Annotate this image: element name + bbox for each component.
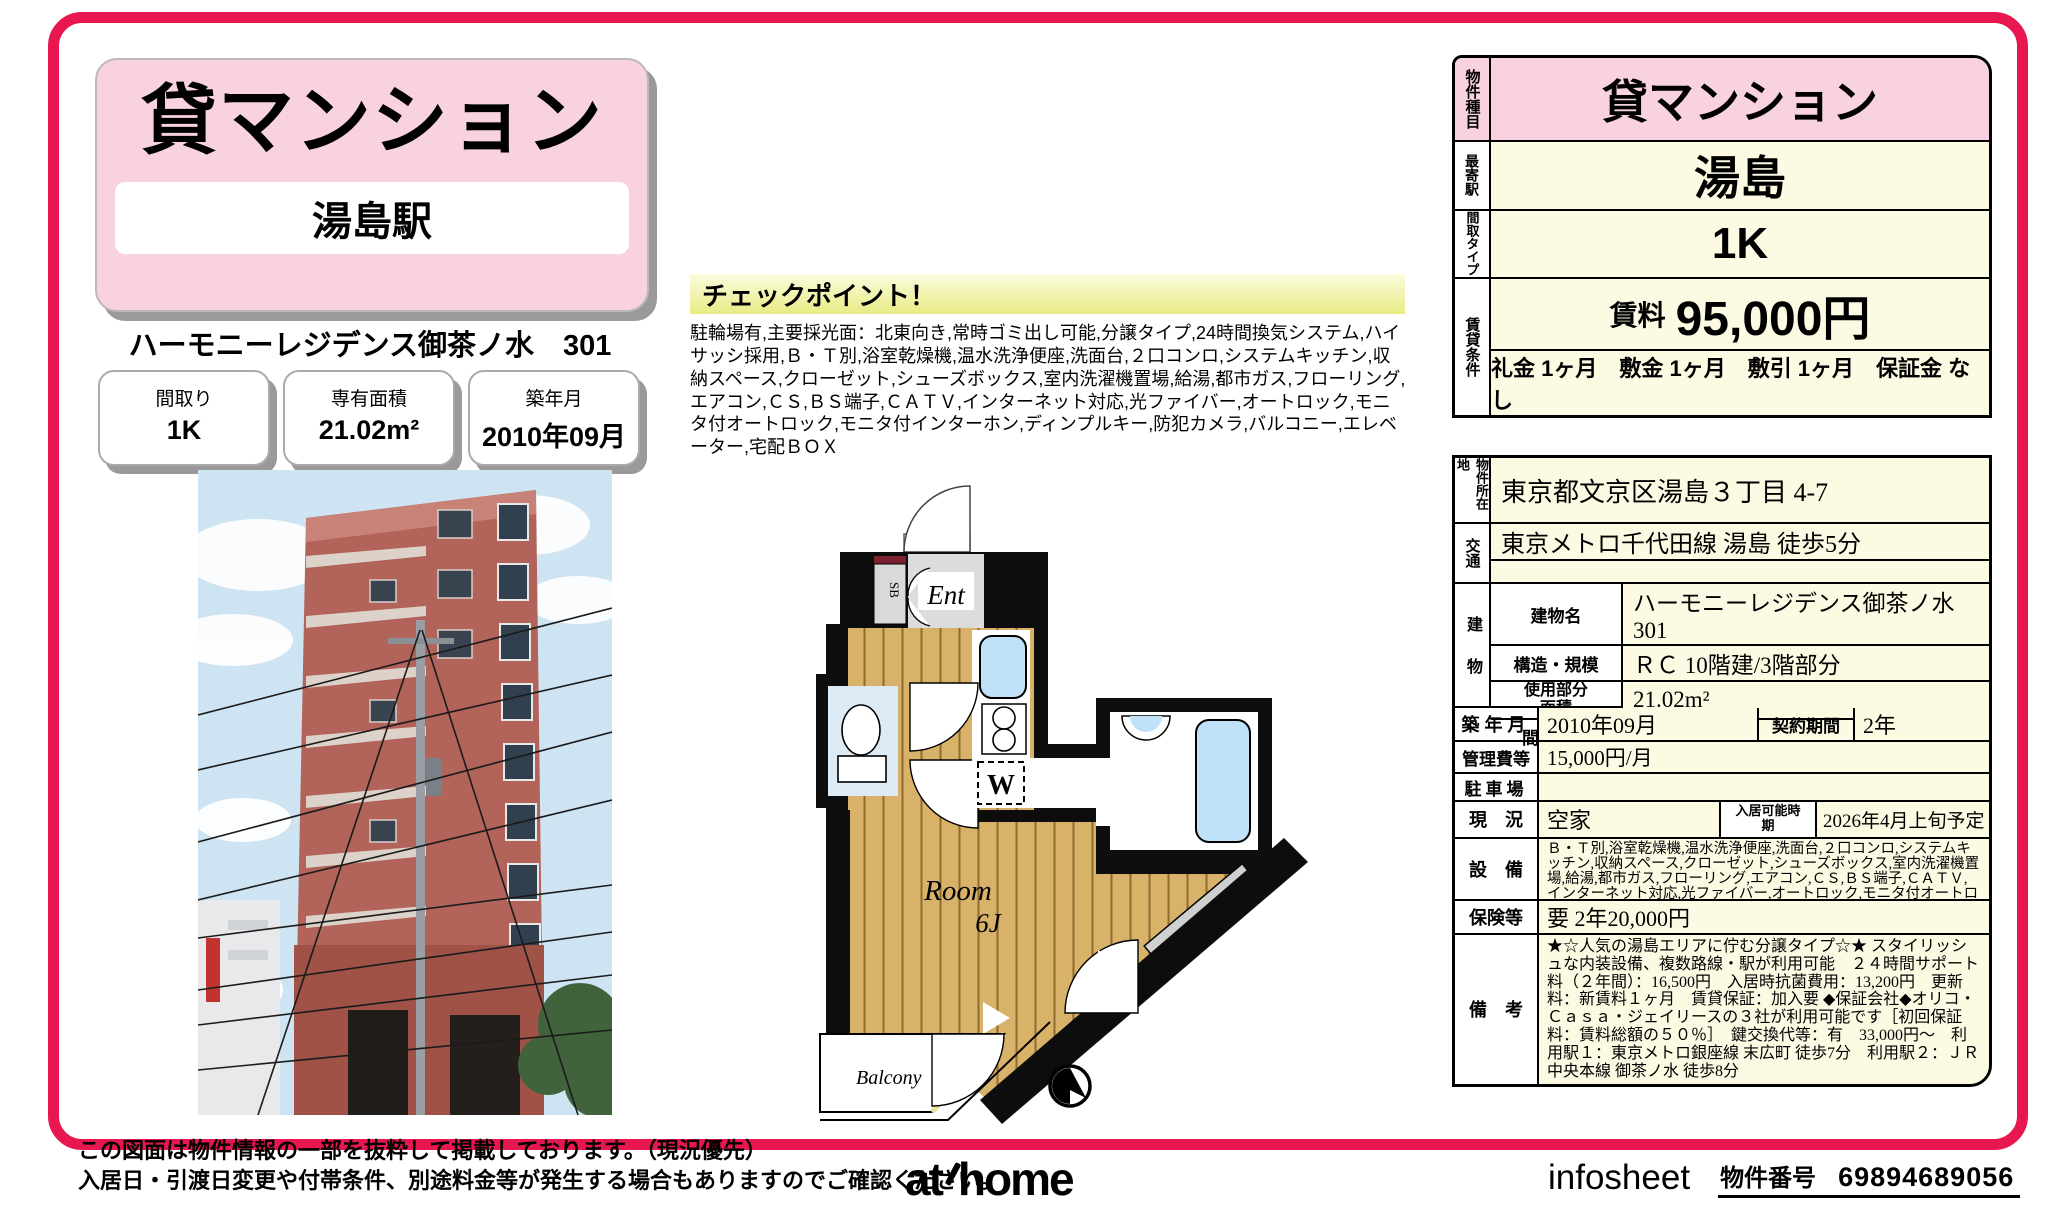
infosheet-label: infosheet — [1548, 1158, 1690, 1198]
contract-value: 2年 — [1855, 708, 1989, 740]
row-label: 設 備 — [1455, 839, 1539, 899]
row-label: 物件種目 — [1455, 58, 1491, 140]
property-type-value: 貸マンション — [1491, 58, 1989, 140]
compass-icon — [1050, 1066, 1090, 1106]
station-name: 湯島駅 — [312, 189, 432, 247]
property-category-title: 貸マンション — [141, 84, 603, 160]
building-subrow: 建物名 ハーモニーレジデンス御茶ノ水 301 — [1491, 584, 1989, 646]
property-number-value: 69894689056 — [1838, 1162, 2014, 1193]
row-label: 最寄駅 — [1455, 142, 1491, 208]
table-row-terms: 賃貸条件 賃料 95,000円 礼金 1ヶ月 敷金 1ヶ月 敷引 1ヶ月 保証金… — [1455, 279, 1989, 415]
spec-box-built: 築年月 2010年09月 — [468, 370, 640, 466]
toilet — [842, 705, 880, 755]
table-row-station: 最寄駅 湯島 — [1455, 142, 1989, 210]
table-row-insurance: 保険等 要 2年20,000円 — [1455, 901, 1989, 935]
footer-disclaimer: この図面は物件情報の一部を抜粋して掲載しております。（現況優先） 入居日・引渡日… — [78, 1136, 1038, 1195]
row-label: 駐車場 — [1455, 774, 1539, 800]
layout-type-value: 1K — [1491, 211, 1989, 277]
spec-label: 間取り — [155, 384, 212, 411]
spec-label: 築年月 — [525, 384, 582, 411]
entrance-label: Ent — [926, 580, 966, 610]
row-label: 現 況 — [1455, 802, 1539, 837]
row-label: 管理費等 — [1455, 742, 1539, 772]
infosheet-page: 貸マンション 湯島駅 ハーモニーレジデンス御茶ノ水 301 間取り 1K 専有面… — [0, 0, 2056, 1222]
athome-logo: at home — [905, 1152, 1073, 1206]
movein-value: 2026年4月上旬予定 — [1817, 802, 1989, 837]
parking-value — [1539, 774, 1989, 800]
detail-table: 物件所在地 東京都文京区湯島３丁目 4-7 交通 東京メトロ千代田線 湯島 徒歩… — [1452, 455, 1992, 1087]
spec-value: 21.02m² — [319, 415, 420, 446]
spec-value: 1K — [167, 415, 202, 446]
disclaimer-line2: 入居日・引渡日変更や付帯条件、別途料金等が発生する場合もありますのでご確認くださ… — [78, 1166, 1038, 1196]
entrance-door-arc — [904, 486, 970, 552]
sub-label: 構造・規模 — [1491, 646, 1623, 680]
sub-label: 建物名 — [1491, 584, 1623, 644]
row-label: 建物 — [1455, 584, 1491, 706]
spec-box-area: 専有面積 21.02m² — [283, 370, 455, 466]
checkpoint-header: チェックポイント！ — [690, 274, 1405, 314]
rent-value: 95,000円 — [1676, 279, 1871, 349]
building-name-line: ハーモニーレジデンス御茶ノ水 301 — [95, 322, 645, 364]
nearest-station-value: 湯島 — [1491, 142, 1989, 208]
access-value: 東京メトロ千代田線 湯島 徒歩5分 — [1491, 524, 1989, 561]
checkpoint-body: 駐輪場有,主要採光面：北東向き,常時ゴミ出し可能,分譲タイプ,24時間換気システ… — [690, 322, 1408, 459]
building-name-value: ハーモニーレジデンス御茶ノ水 301 — [1623, 584, 1989, 644]
utility-pole — [416, 620, 425, 1115]
access-empty-row — [1491, 561, 1989, 582]
spec-value: 2010年09月 — [482, 415, 626, 454]
table-row-access: 交通 東京メトロ千代田線 湯島 徒歩5分 — [1455, 524, 1989, 584]
table-row-type: 物件種目 貸マンション — [1455, 58, 1989, 142]
disclaimer-line1: この図面は物件情報の一部を抜粋して掲載しております。（現況優先） — [78, 1136, 1038, 1166]
checkpoint-title: チェックポイント！ — [690, 276, 936, 313]
washer-label: W — [987, 770, 1015, 801]
table-row-layout: 間取タイプ 1K — [1455, 211, 1989, 279]
infosheet-footer: infosheet 物件番号 69894689056 — [1548, 1158, 2020, 1198]
equipment-value: Ｂ・Ｔ別,浴室乾燥機,温水洗浄便座,洗面台,２口コンロ,システムキッチン,収納ス… — [1539, 839, 1989, 899]
property-number-group: 物件番号 69894689056 — [1718, 1158, 2020, 1198]
row-label: 備 考 — [1455, 935, 1539, 1084]
location-value: 東京都文京区湯島３丁目 4-7 — [1491, 458, 1989, 522]
table-row-notes: 備 考 ★☆人気の湯島エリアに佇む分譲タイプ☆★ スタイリッシュな内装設備、複数… — [1455, 935, 1989, 1084]
table-row-location: 物件所在地 東京都文京区湯島３丁目 4-7 — [1455, 458, 1989, 524]
fee-value: 15,000円/月 — [1539, 742, 1989, 772]
table-row-fee: 管理費等 15,000円/月 — [1455, 742, 1989, 774]
room-size-label: 6J — [975, 908, 1003, 938]
summary-table: 物件種目 貸マンション 最寄駅 湯島 間取タイプ 1K 賃貸条件 賃料 95,0… — [1452, 55, 1992, 418]
movein-label: 入居可能時期 — [1721, 802, 1817, 837]
row-label: 交通 — [1455, 524, 1491, 582]
table-row-building: 建物 建物名 ハーモニーレジデンス御茶ノ水 301 構造・規模 ＲＣ 10階建/… — [1455, 584, 1989, 708]
kitchen-sink — [980, 636, 1026, 698]
logo-home: home — [958, 1152, 1073, 1206]
property-category-card: 貸マンション 湯島駅 — [95, 58, 649, 312]
building-photo — [198, 470, 612, 1115]
status-value: 空家 — [1539, 802, 1721, 837]
station-name-box: 湯島駅 — [115, 182, 629, 254]
balcony-label: Balcony — [856, 1067, 922, 1089]
row-label: 賃貸条件 — [1455, 279, 1491, 415]
rent-label: 賃料 — [1610, 294, 1666, 334]
floorplan: Closet SB Ent W Room 6J Balcony — [798, 478, 1333, 1173]
contract-label: 契約期間 — [1759, 708, 1855, 740]
insurance-value: 要 2年20,000円 — [1539, 901, 1989, 933]
table-row-status: 現 況 空家 入居可能時期 2026年4月上旬予定 — [1455, 802, 1989, 839]
structure-value: ＲＣ 10階建/3階部分 — [1623, 646, 1989, 680]
property-number-label: 物件番号 — [1720, 1158, 1816, 1193]
row-label: 物件所在地 — [1455, 458, 1491, 522]
row-label: 保険等 — [1455, 901, 1539, 933]
spec-box-layout: 間取り 1K — [98, 370, 270, 466]
room-label: Room — [923, 875, 992, 907]
row-label: 築年月 — [1455, 708, 1539, 740]
spec-label: 専有面積 — [331, 384, 407, 411]
table-row-equipment: 設 備 Ｂ・Ｔ別,浴室乾燥機,温水洗浄便座,洗面台,２口コンロ,システムキッチン… — [1455, 839, 1989, 901]
rent-row: 賃料 95,000円 — [1491, 279, 1989, 351]
building-subrow: 構造・規模 ＲＣ 10階建/3階部分 — [1491, 646, 1989, 682]
shoebox-label: SB — [887, 582, 902, 598]
table-row-built: 築年月 2010年09月 契約期間 2年 — [1455, 708, 1989, 742]
built-value: 2010年09月 — [1539, 708, 1759, 740]
notes-value: ★☆人気の湯島エリアに佇む分譲タイプ☆★ スタイリッシュな内装設備、複数路線・駅… — [1539, 935, 1989, 1084]
table-row-parking: 駐車場 — [1455, 774, 1989, 802]
bathtub — [1196, 720, 1250, 842]
row-label: 間取タイプ — [1455, 211, 1491, 277]
deposit-terms: 礼金 1ヶ月 敷金 1ヶ月 敷引 1ヶ月 保証金 なし — [1491, 351, 1989, 415]
logo-at: at — [905, 1152, 942, 1206]
